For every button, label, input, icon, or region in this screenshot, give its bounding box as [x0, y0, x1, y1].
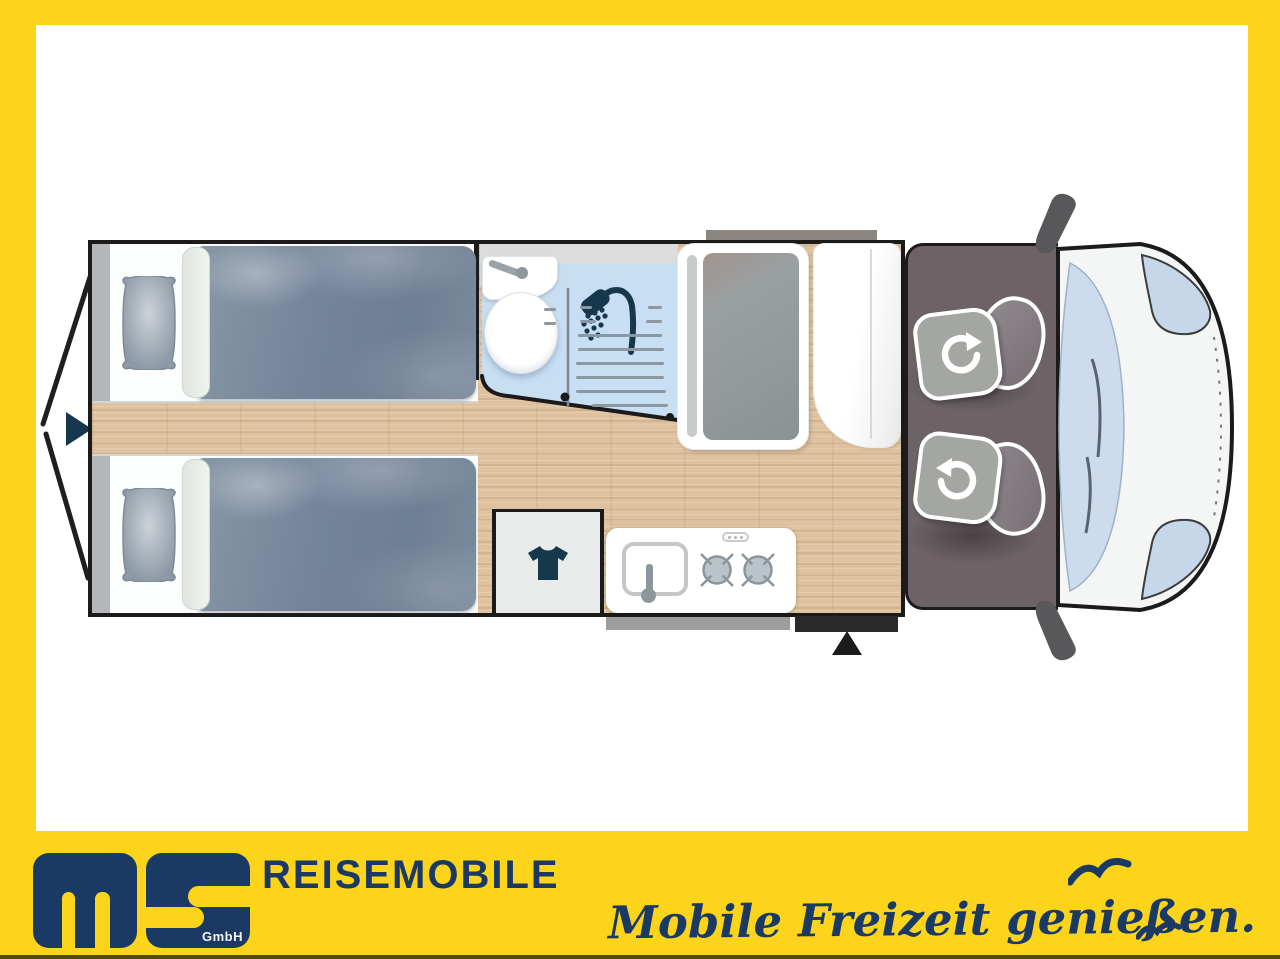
bed-single-left [92, 244, 478, 403]
pillow [118, 276, 180, 370]
toilet [484, 292, 558, 374]
rotate-arrow-icon [936, 330, 982, 376]
duvet [196, 458, 476, 611]
swivel-seat-driver [914, 296, 1052, 406]
entry-step [795, 616, 898, 632]
hob-control-panel [722, 532, 749, 542]
entry-step-arrow-icon [832, 631, 862, 655]
two-burner-hob [696, 550, 792, 592]
rear-wall-strip [92, 456, 110, 613]
kitchen-faucet-knob [641, 588, 656, 603]
fridge-door-seam [870, 249, 872, 439]
bottom-edge-stripe [0, 955, 1280, 959]
bathroom [480, 244, 678, 430]
kitchen-sink [622, 542, 688, 596]
wardrobe-door-panel [703, 253, 799, 440]
cab-floor [905, 243, 1058, 610]
duvet [196, 246, 476, 399]
logo-gmbh-label: GmbH [202, 929, 243, 944]
logo-letter-s: GmbH [146, 853, 250, 948]
duvet-fold [182, 247, 210, 398]
burner-icon [742, 554, 774, 586]
side-mirror [1030, 598, 1080, 662]
logo-letter-m [33, 853, 137, 948]
door-hinge-dot [666, 413, 674, 421]
door-hinge-dot [561, 393, 570, 402]
seagull-icon [1136, 916, 1182, 944]
swivel-seat-passenger [914, 428, 1052, 538]
fridge-tall-cabinet [814, 244, 900, 447]
rotate-arrow-icon [936, 456, 982, 502]
tshirt-icon [527, 545, 569, 581]
kitchen-counter [606, 528, 796, 613]
rear-wall-strip [92, 244, 110, 401]
vehicle-cab-front [1054, 241, 1236, 613]
exterior-skirt [606, 617, 790, 630]
company-name: REISEMOBILE [262, 853, 560, 898]
side-mirror [1030, 192, 1080, 256]
wardrobe [678, 244, 808, 449]
seagull-icon [1068, 852, 1132, 892]
burner-icon [701, 554, 733, 586]
duvet-fold [182, 459, 210, 610]
faucet-knob [516, 267, 528, 279]
motorhome-body [88, 240, 905, 617]
clothes-cabinet [492, 509, 604, 613]
advert-page: GmbH REISEMOBILE Mobile Freizeit genieße… [0, 0, 1280, 959]
bed-single-right [92, 454, 478, 613]
wardrobe-hinge [687, 255, 697, 437]
pillow [118, 488, 180, 582]
